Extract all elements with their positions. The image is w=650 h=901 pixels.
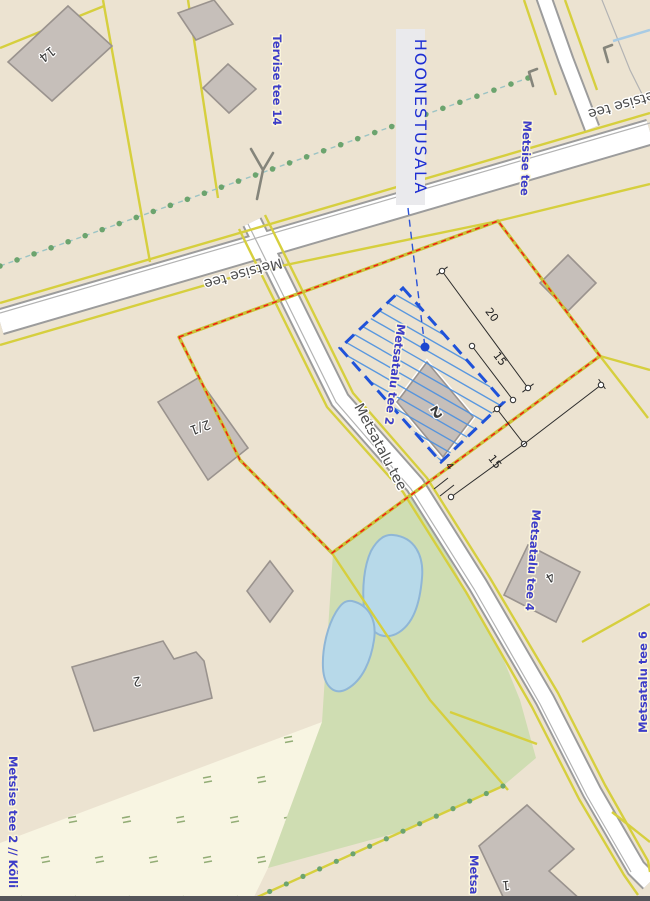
- address-metsatalu-tee-6: Metsatalu tee 6: [636, 631, 650, 733]
- callout-anchor-dot: [421, 343, 430, 352]
- map-canvas[interactable]: 20 15 15 4 HOONESTUSALA 14 2/1 2 2 4 1 M…: [0, 0, 650, 901]
- window-edge: [0, 896, 650, 901]
- address-tervise-tee-14: Tervise tee 14: [270, 35, 284, 126]
- hoonestusala-label: HOONESTUSALA: [411, 39, 430, 196]
- address-metsa-partial: Metsa: [467, 855, 481, 894]
- address-metsise-tee-2-kolli: Metsise tee 2 // Kõlli: [6, 756, 20, 888]
- site-plan-map[interactable]: 20 15 15 4 HOONESTUSALA 14 2/1 2 2 4 1 M…: [0, 0, 650, 901]
- building-1-number: 1: [501, 877, 511, 893]
- address-metsise-tee: Metsise tee: [518, 120, 535, 196]
